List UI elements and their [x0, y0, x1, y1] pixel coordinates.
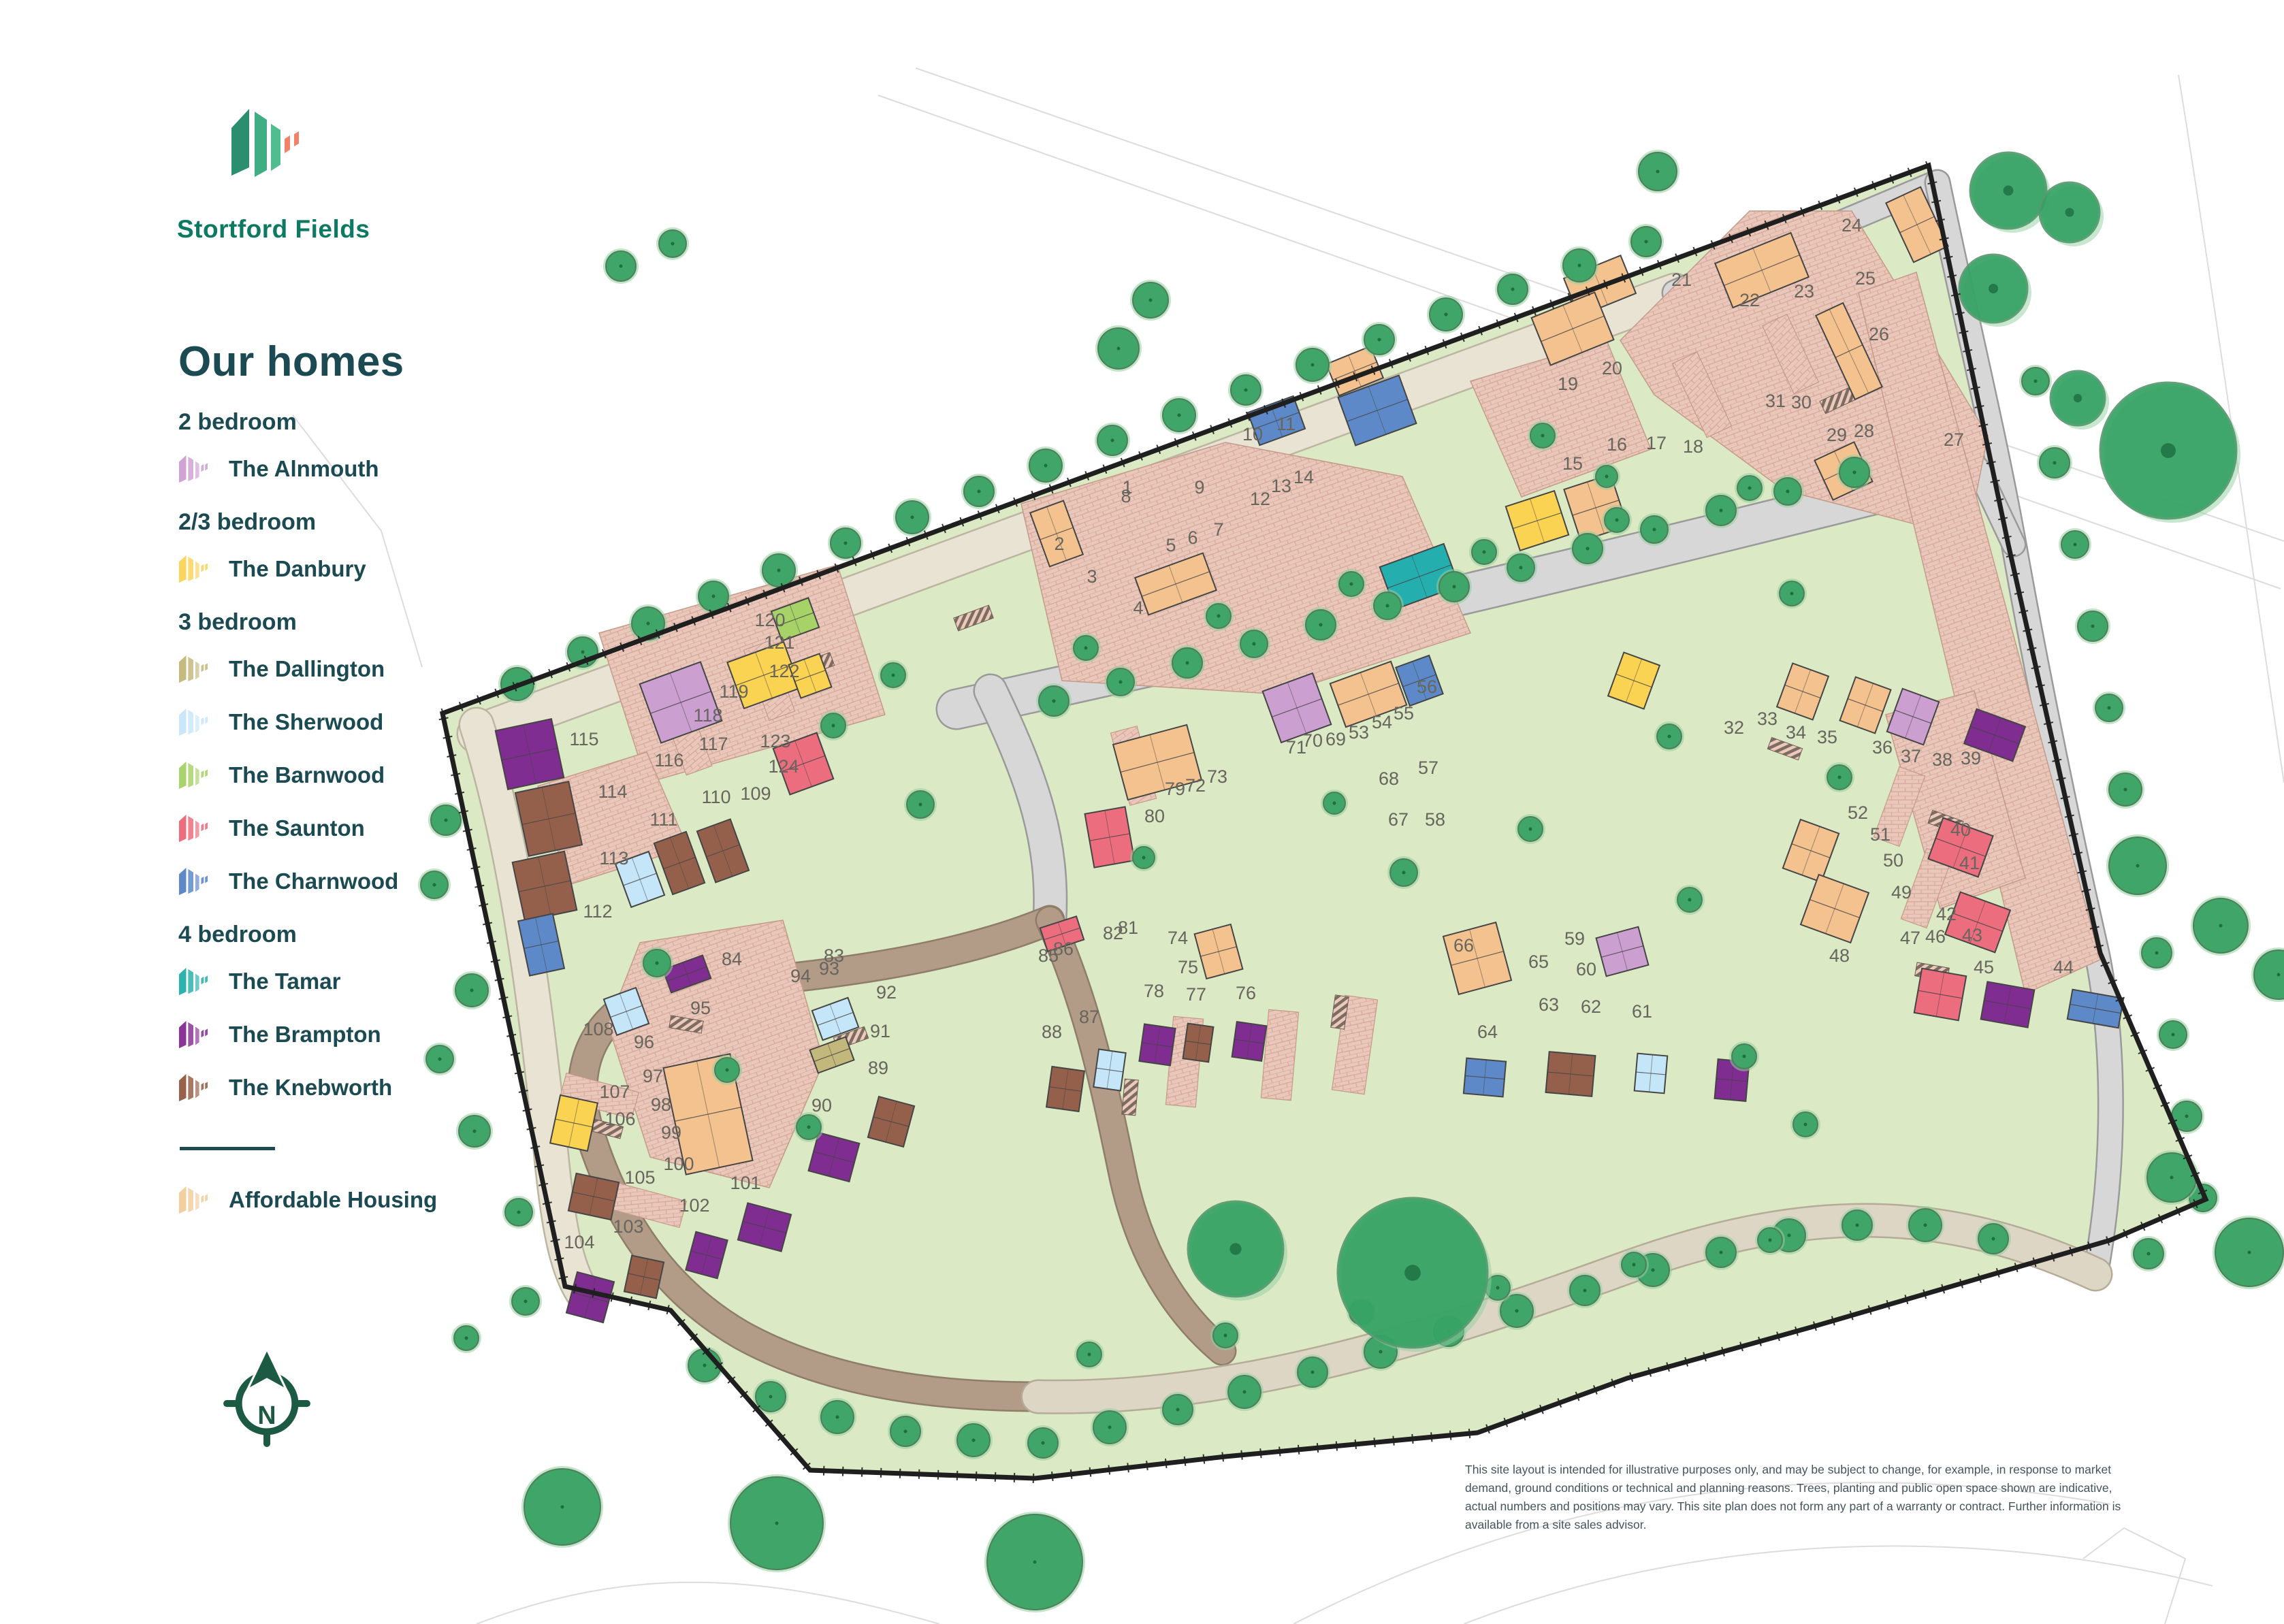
plot-number: 68 — [1379, 768, 1399, 789]
plot-number: 25 — [1855, 268, 1876, 289]
plot-number: 12 — [1250, 489, 1270, 509]
tree — [1427, 295, 1465, 334]
plot-number: 109 — [740, 783, 771, 804]
legend-item-label: The Barnwood — [229, 762, 385, 788]
plot-number: 117 — [698, 734, 728, 754]
legend-item-alnmouth: The Alnmouth — [178, 449, 464, 489]
legend-title: Our homes — [178, 338, 464, 386]
house-saunton — [1085, 807, 1135, 867]
plot-number: 112 — [583, 901, 612, 922]
plot-number: 123 — [760, 731, 790, 751]
plot-number: 35 — [1817, 727, 1837, 747]
tree — [794, 1112, 824, 1142]
tree — [2139, 935, 2174, 971]
tree — [984, 1512, 1085, 1612]
tree — [1130, 844, 1157, 871]
plot-number: 34 — [1786, 722, 1806, 743]
tree — [1729, 1041, 1759, 1071]
tree — [1628, 224, 1664, 259]
house-brampton — [1981, 981, 2035, 1027]
disclaimer-text: This site layout is intended for illustr… — [1465, 1461, 2146, 1535]
plot-number: 38 — [1932, 749, 1952, 770]
site-plan-page: { "brand": {"name": "Stortford Fields"},… — [0, 0, 2284, 1624]
plot-number: 60 — [1576, 959, 1596, 979]
legend-item-saunton: The Saunton — [178, 809, 464, 848]
tree — [1619, 1250, 1649, 1280]
plot-number: 103 — [613, 1216, 643, 1237]
plot-number: 59 — [1564, 928, 1585, 949]
plot-number: 120 — [754, 610, 785, 630]
legend-item-brampton: The Brampton — [178, 1015, 464, 1054]
plot-number: 39 — [1961, 748, 1981, 768]
plot-number: 97 — [643, 1066, 663, 1086]
plot-number: 77 — [1186, 984, 1206, 1005]
large-tree — [2040, 182, 2104, 246]
plot-number: 20 — [1602, 358, 1622, 378]
tree — [1074, 1339, 1104, 1369]
tree — [893, 498, 931, 536]
legend-item-label: Affordable Housing — [229, 1187, 437, 1213]
home-type-icon — [178, 705, 208, 739]
tree — [1095, 325, 1142, 372]
home-type-icon — [178, 1071, 208, 1105]
tree — [828, 525, 863, 561]
tree — [2157, 1018, 2189, 1051]
plot-number: 28 — [1854, 421, 1874, 441]
plot-number: 14 — [1293, 467, 1314, 487]
tree — [818, 1398, 856, 1436]
tree — [1837, 455, 1872, 490]
plot-number: 91 — [870, 1021, 890, 1041]
home-type-icon — [178, 452, 208, 486]
home-type-icon — [178, 1183, 208, 1217]
plot-number: 53 — [1349, 722, 1369, 743]
tree — [1570, 531, 1605, 566]
plot-number: 13 — [1271, 476, 1291, 496]
house-brampton — [1139, 1024, 1175, 1066]
tree — [603, 248, 639, 284]
plot-number: 24 — [1841, 215, 1862, 236]
plot-number: 118 — [693, 705, 722, 726]
plot-number: 8 — [1121, 486, 1131, 506]
home-type-icon — [178, 552, 208, 586]
tree — [1025, 1425, 1061, 1461]
plot-number: 5 — [1165, 535, 1176, 555]
plot-number: 64 — [1477, 1022, 1498, 1042]
tree — [451, 1323, 481, 1353]
tree — [1170, 645, 1205, 681]
plot-number: 105 — [624, 1167, 655, 1188]
tree — [1095, 423, 1130, 458]
house-sherwood — [1093, 1049, 1125, 1090]
plot-number: 58 — [1425, 809, 1445, 830]
tree — [521, 1466, 603, 1548]
tree — [2037, 445, 2072, 481]
plot-number: 79 — [1165, 779, 1185, 799]
legend-item-sherwood: The Sherwood — [178, 702, 464, 742]
plot-number: 89 — [868, 1058, 888, 1078]
plot-number: 75 — [1178, 957, 1198, 977]
plot-number: 46 — [1925, 926, 1946, 947]
tree — [1036, 683, 1072, 719]
plot-number: 82 — [1103, 923, 1123, 943]
tree — [1303, 607, 1338, 643]
large-tree — [2100, 383, 2240, 523]
plot-number: 23 — [1794, 281, 1814, 302]
tree — [1336, 569, 1366, 599]
tree — [1602, 505, 1632, 535]
plot-number: 110 — [701, 787, 730, 807]
plot-number: 3 — [1087, 566, 1097, 587]
plot-number: 121 — [764, 632, 794, 653]
plot-number: 65 — [1528, 952, 1549, 972]
tree — [961, 474, 997, 509]
legend-item-charnwood: The Charnwood — [178, 862, 464, 901]
plot-number: 76 — [1236, 983, 1256, 1003]
legend-item-label: The Tamar — [229, 969, 340, 994]
plot-number: 111 — [649, 809, 677, 830]
tree — [1436, 569, 1472, 604]
plot-number: 94 — [790, 966, 811, 986]
tree — [1824, 762, 1854, 792]
tree — [1906, 1206, 1944, 1244]
tree — [954, 1421, 993, 1459]
plot-number: 16 — [1607, 434, 1627, 455]
tree — [2191, 896, 2251, 956]
legend-item-label: The Knebworth — [229, 1075, 392, 1101]
house-knebworth — [568, 1173, 619, 1220]
house-knebworth — [624, 1256, 664, 1299]
tree — [1495, 272, 1530, 307]
plot-number: 51 — [1870, 824, 1891, 845]
plot-number: 122 — [769, 661, 799, 681]
house-brampton — [1232, 1022, 1267, 1061]
home-type-icon — [178, 811, 208, 845]
tree — [1130, 280, 1171, 321]
plot-number: 87 — [1079, 1007, 1099, 1027]
tree — [1638, 513, 1671, 546]
plot-number: 41 — [1959, 853, 1980, 873]
legend-cat-23bed: 2/3 bedroom — [178, 509, 464, 536]
plot-number: 104 — [564, 1232, 594, 1252]
tree — [1293, 346, 1332, 384]
plot-number: 44 — [2053, 957, 2074, 977]
tree — [1703, 1235, 1739, 1270]
compass-north-label: N — [257, 1401, 276, 1429]
tree — [1505, 551, 1537, 584]
plot-number: 19 — [1558, 374, 1578, 394]
legend-item-label: The Saunton — [229, 815, 365, 841]
tree — [2093, 692, 2125, 724]
tree — [2106, 834, 2169, 897]
plot-number: 2 — [1054, 534, 1064, 554]
plot-number: 72 — [1185, 775, 1206, 796]
legend-item-affordable-housing: Affordable Housing — [178, 1180, 464, 1220]
plot-number: 61 — [1632, 1001, 1652, 1022]
plot-number: 37 — [1901, 746, 1921, 766]
tree — [888, 1414, 923, 1449]
plot-number: 100 — [663, 1154, 694, 1174]
legend-cat-2bed: 2 bedroom — [178, 409, 464, 436]
plot-number: 78 — [1144, 981, 1164, 1001]
house-knebworth — [1046, 1067, 1084, 1111]
plot-number: 113 — [599, 848, 628, 868]
plot-number: 101 — [730, 1173, 760, 1193]
tree — [1515, 814, 1545, 844]
tree — [712, 1055, 742, 1085]
plot-number: 48 — [1829, 945, 1850, 966]
house-knebworth — [513, 851, 577, 921]
plot-number: 57 — [1418, 758, 1438, 778]
plot-number: 62 — [1581, 996, 1601, 1017]
plot-number: 115 — [569, 729, 598, 749]
tree — [1225, 1373, 1264, 1411]
tree — [1371, 589, 1404, 622]
house-knebworth — [1546, 1052, 1596, 1097]
tree — [1654, 721, 1684, 751]
tree — [1362, 322, 1397, 357]
large-tree — [1970, 152, 2050, 233]
legend-divider — [180, 1147, 275, 1150]
plot-number: 93 — [819, 958, 839, 979]
tree — [1104, 666, 1137, 698]
plot-number: 73 — [1207, 766, 1227, 787]
legend-item-label: The Sherwood — [229, 709, 383, 735]
legend-item-barnwood: The Barnwood — [178, 756, 464, 795]
plot-number: 45 — [1974, 957, 1994, 977]
plot-number: 102 — [679, 1195, 709, 1216]
legend-item-label: The Alnmouth — [229, 456, 379, 482]
context-road — [477, 1582, 939, 1624]
tree — [2213, 1216, 2284, 1289]
tree — [1703, 493, 1739, 528]
plot-number: 29 — [1827, 425, 1847, 445]
tree — [2131, 1236, 2166, 1271]
tree — [1976, 1221, 2011, 1256]
plot-number: 74 — [1168, 928, 1188, 948]
home-type-icon — [178, 964, 208, 998]
plot-number: 30 — [1791, 392, 1812, 412]
tree — [1560, 246, 1598, 285]
tree — [1071, 633, 1101, 663]
plot-number: 86 — [1053, 939, 1074, 959]
tree — [2059, 528, 2091, 561]
house-sherwood — [1635, 1054, 1668, 1094]
plot-number: 32 — [1724, 717, 1744, 738]
tree — [509, 1285, 542, 1318]
north-compass-icon: N — [219, 1339, 315, 1447]
tree — [641, 947, 673, 979]
tree — [1567, 1273, 1603, 1308]
house-knebworth — [1183, 1024, 1214, 1062]
tree — [1160, 1392, 1195, 1427]
plot-number: 26 — [1869, 324, 1889, 344]
plot-number: 99 — [661, 1122, 681, 1143]
tree — [502, 1196, 535, 1229]
plot-number: 80 — [1144, 806, 1165, 826]
plot-number: 95 — [690, 998, 711, 1018]
legend-item-dallington: The Dallington — [178, 649, 464, 689]
plot-number: 50 — [1883, 850, 1903, 871]
plot-number: 47 — [1900, 928, 1920, 948]
brand-name: Stortford Fields — [177, 215, 370, 244]
plot-number: 52 — [1848, 802, 1868, 823]
tree — [1204, 601, 1234, 631]
plot-number: 96 — [634, 1032, 654, 1052]
legend-item-label: The Dallington — [229, 656, 385, 682]
plot-number: 66 — [1453, 935, 1474, 956]
plot-number: 17 — [1646, 433, 1667, 453]
tree — [2251, 947, 2284, 1002]
plot-number: 106 — [605, 1109, 635, 1129]
tree — [1160, 396, 1198, 434]
plot-number: 18 — [1683, 436, 1703, 457]
house-charnwood — [1464, 1058, 1506, 1097]
tree — [1790, 1109, 1820, 1139]
plot-number: 15 — [1562, 453, 1583, 474]
legend-item-knebworth: The Knebworth — [178, 1068, 464, 1107]
plot-number: 22 — [1739, 290, 1760, 310]
tree — [656, 227, 689, 260]
plot-number: 98 — [651, 1094, 671, 1115]
legend-cat-4bed: 4 bedroom — [178, 922, 464, 948]
plot-number: 10 — [1242, 424, 1263, 444]
plot-number: 54 — [1372, 712, 1392, 732]
stortford-fields-logo — [229, 102, 300, 182]
plot-number: 42 — [1936, 904, 1957, 924]
plot-number: 67 — [1388, 809, 1409, 830]
tree — [1238, 628, 1270, 660]
tree — [2075, 608, 2110, 644]
legend-item-danbury: The Danbury — [178, 549, 464, 589]
tree — [1295, 1354, 1330, 1390]
tree — [1636, 150, 1679, 193]
tree — [904, 788, 937, 821]
tree — [1777, 579, 1807, 608]
plot-number: 88 — [1042, 1022, 1062, 1042]
tree — [1528, 421, 1558, 451]
tree — [2019, 365, 2052, 397]
plot-number: 27 — [1944, 429, 1964, 450]
plot-number: 90 — [811, 1095, 832, 1116]
plot-number: 33 — [1757, 709, 1778, 729]
home-type-icon — [178, 864, 208, 898]
tree — [728, 1474, 826, 1572]
legend-cat-3bed: 3 bedroom — [178, 609, 464, 636]
plot-number: 69 — [1325, 729, 1346, 749]
plot-number: 56 — [1417, 677, 1437, 697]
tree — [1210, 1320, 1240, 1350]
plot-number: 124 — [768, 756, 799, 777]
home-type-icon — [178, 652, 208, 686]
plot-number: 63 — [1539, 994, 1559, 1015]
plot-number: 21 — [1671, 270, 1692, 290]
large-tree — [2050, 371, 2109, 429]
plot-number: 55 — [1394, 703, 1414, 724]
tree — [1839, 1207, 1875, 1243]
plot-number: 114 — [598, 781, 627, 802]
plot-number: 40 — [1950, 819, 1971, 840]
legend-item-label: The Charnwood — [229, 868, 398, 894]
plot-number: 7 — [1213, 519, 1223, 540]
plot-number: 119 — [719, 681, 748, 702]
house-brampton — [496, 719, 564, 790]
house-saunton — [1914, 969, 1966, 1020]
crossing-hatch — [1122, 1079, 1138, 1116]
legend: Our homes 2 bedroom The Alnmouth 2/3 bed… — [178, 338, 464, 1233]
plot-number: 49 — [1891, 882, 1912, 903]
legend-item-label: The Brampton — [229, 1022, 381, 1048]
tree — [1469, 537, 1499, 567]
plot-number: 9 — [1194, 477, 1204, 498]
tree — [1228, 372, 1264, 408]
legend-item-tamar: The Tamar — [178, 962, 464, 1001]
plot-number: 43 — [1962, 925, 1982, 945]
plot-number: 71 — [1286, 737, 1306, 758]
plot-number: 92 — [876, 982, 897, 1003]
tree — [1091, 1408, 1129, 1446]
plot-number: 11 — [1276, 414, 1296, 434]
tree — [1027, 446, 1065, 485]
home-type-icon — [178, 758, 208, 792]
tree — [1387, 856, 1420, 889]
tree — [1593, 463, 1620, 490]
tree — [818, 711, 848, 741]
plot-number: 107 — [599, 1082, 630, 1102]
plot-number: 108 — [583, 1019, 613, 1039]
tree — [1675, 885, 1705, 915]
tree — [1755, 1225, 1785, 1255]
plot-number: 31 — [1765, 391, 1786, 411]
plot-number: 4 — [1133, 598, 1143, 618]
plot-number: 6 — [1187, 527, 1197, 548]
context-road — [1464, 1546, 2213, 1624]
tree — [2106, 770, 2144, 809]
legend-item-label: The Danbury — [229, 556, 366, 582]
tree — [1321, 790, 1348, 817]
tree — [1735, 473, 1765, 503]
plot-number: 116 — [654, 750, 683, 770]
tree — [1771, 475, 1804, 508]
home-type-icon — [178, 1018, 208, 1052]
plot-number: 84 — [722, 949, 742, 969]
plot-number: 36 — [1872, 737, 1893, 758]
tree — [878, 660, 908, 690]
